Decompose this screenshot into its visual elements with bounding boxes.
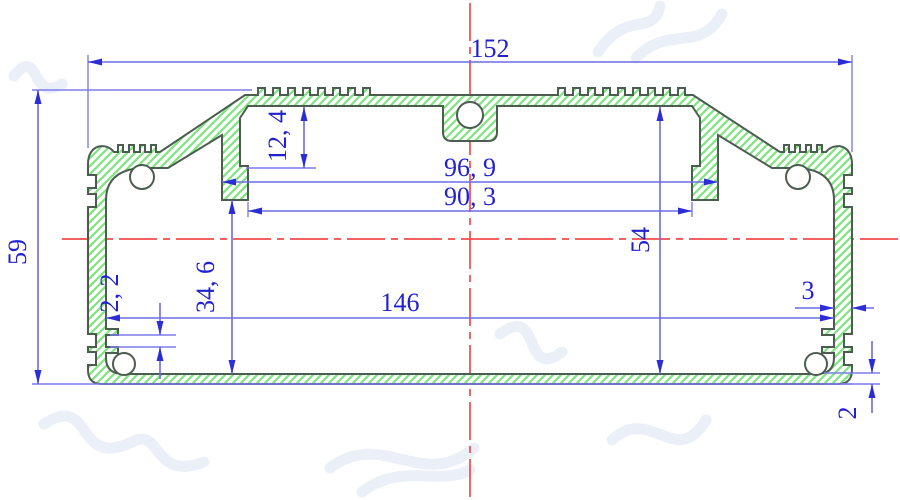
screw-channel-bottom-left — [113, 353, 135, 375]
arrowhead — [157, 347, 164, 361]
arrowhead — [869, 359, 876, 373]
arrowhead — [229, 360, 236, 374]
dim-overall-height-label: 59 — [3, 239, 32, 265]
arrowhead — [301, 154, 308, 168]
arrowhead — [657, 107, 664, 121]
dim-rail-inner-width-label: 96, 9 — [444, 153, 496, 182]
centerlines — [62, 3, 898, 498]
arrowhead — [88, 59, 102, 66]
dim-overall-width-label: 152 — [471, 34, 510, 63]
arrowhead — [838, 59, 852, 66]
arrowhead — [678, 208, 692, 215]
dim-boss-to-floor: 34, 6 — [191, 200, 236, 374]
cad-drawing-canvas: 152 59 12, 4 96, 9 — [0, 0, 900, 500]
dim-top-recess-depth: 12, 4 — [246, 107, 316, 168]
screw-channel-top-left — [130, 165, 154, 189]
dim-boss-inner-width-label: 90, 3 — [444, 182, 496, 211]
dim-side-wall-thickness-label: 3 — [802, 276, 815, 305]
arrowhead — [657, 360, 664, 374]
screw-channel-bottom-right — [805, 353, 827, 375]
arrowhead — [35, 370, 42, 384]
dim-slot-gap-label: 2, 2 — [95, 274, 124, 313]
dim-boss-inner-width: 90, 3 — [248, 182, 692, 217]
arrowhead — [106, 315, 120, 322]
extrusion-profile-drawing: 152 59 12, 4 96, 9 — [0, 0, 900, 500]
dim-boss-to-floor-label: 34, 6 — [191, 261, 220, 313]
arrowhead — [157, 321, 164, 335]
arrowhead — [229, 200, 236, 214]
arrowhead — [820, 315, 834, 322]
dim-cavity-height-label: 54 — [626, 227, 655, 253]
screw-channel-top-right — [786, 165, 810, 189]
arrowhead — [248, 208, 262, 215]
arrowhead — [852, 305, 866, 312]
arrowhead — [35, 90, 42, 104]
dim-cavity-height: 54 — [626, 107, 664, 374]
arrowhead — [301, 107, 308, 121]
dim-rail-inner-width: 96, 9 — [222, 153, 718, 186]
center-screw-boss-hole — [457, 102, 483, 128]
watermark — [14, 6, 722, 492]
arrowhead — [869, 384, 876, 398]
dim-wall-inner-width-label: 146 — [381, 288, 420, 317]
arrowhead — [820, 305, 834, 312]
dim-bottom-wall-thickness-label: 2 — [833, 407, 862, 420]
dim-top-recess-depth-label: 12, 4 — [263, 110, 292, 162]
